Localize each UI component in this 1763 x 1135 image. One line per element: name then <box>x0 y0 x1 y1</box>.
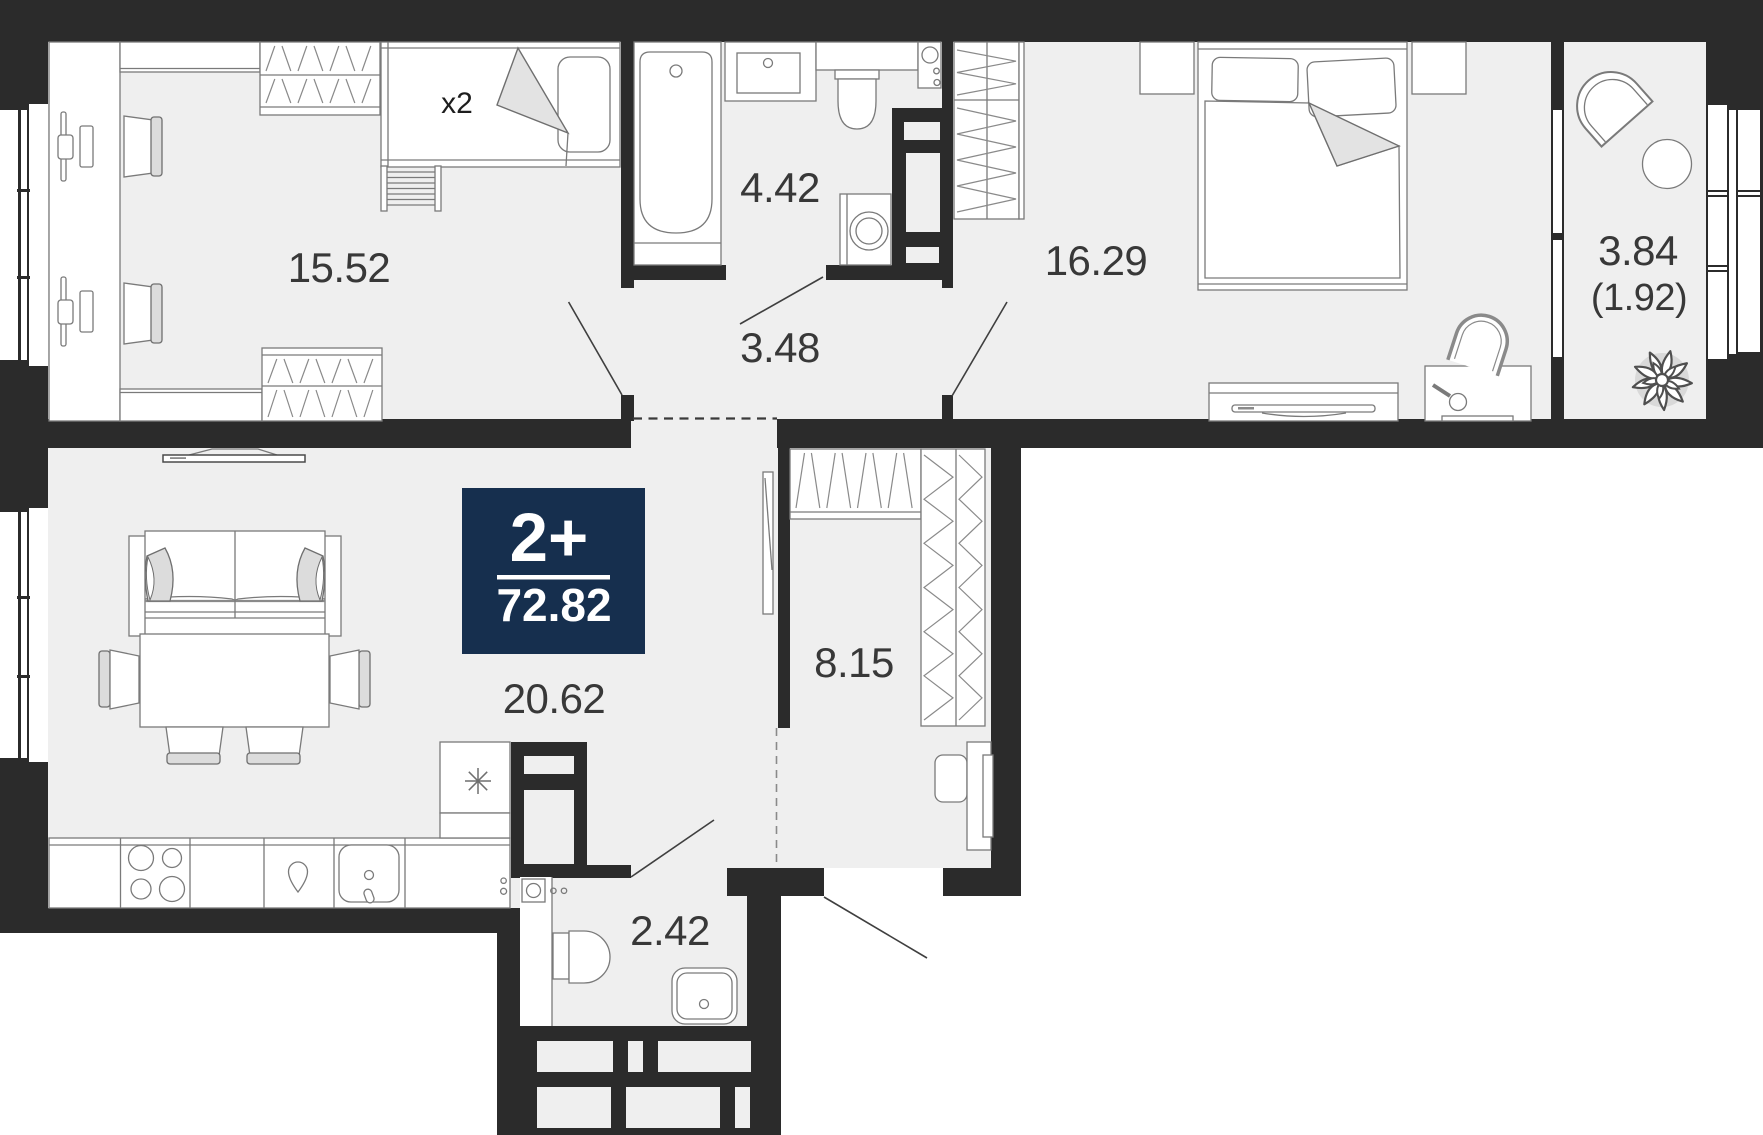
svg-text:2.42: 2.42 <box>630 907 710 954</box>
svg-text:20.62: 20.62 <box>503 675 606 722</box>
svg-text:(1.92): (1.92) <box>1591 277 1687 319</box>
svg-text:4.42: 4.42 <box>740 164 820 211</box>
svg-text:72.82: 72.82 <box>496 579 611 631</box>
svg-text:x2: x2 <box>441 87 473 120</box>
svg-text:16.29: 16.29 <box>1045 237 1148 284</box>
svg-text:8.15: 8.15 <box>814 639 894 686</box>
svg-text:2+: 2+ <box>510 499 589 576</box>
svg-text:3.84: 3.84 <box>1598 227 1678 274</box>
svg-text:3.48: 3.48 <box>740 324 820 371</box>
svg-text:15.52: 15.52 <box>288 244 391 291</box>
